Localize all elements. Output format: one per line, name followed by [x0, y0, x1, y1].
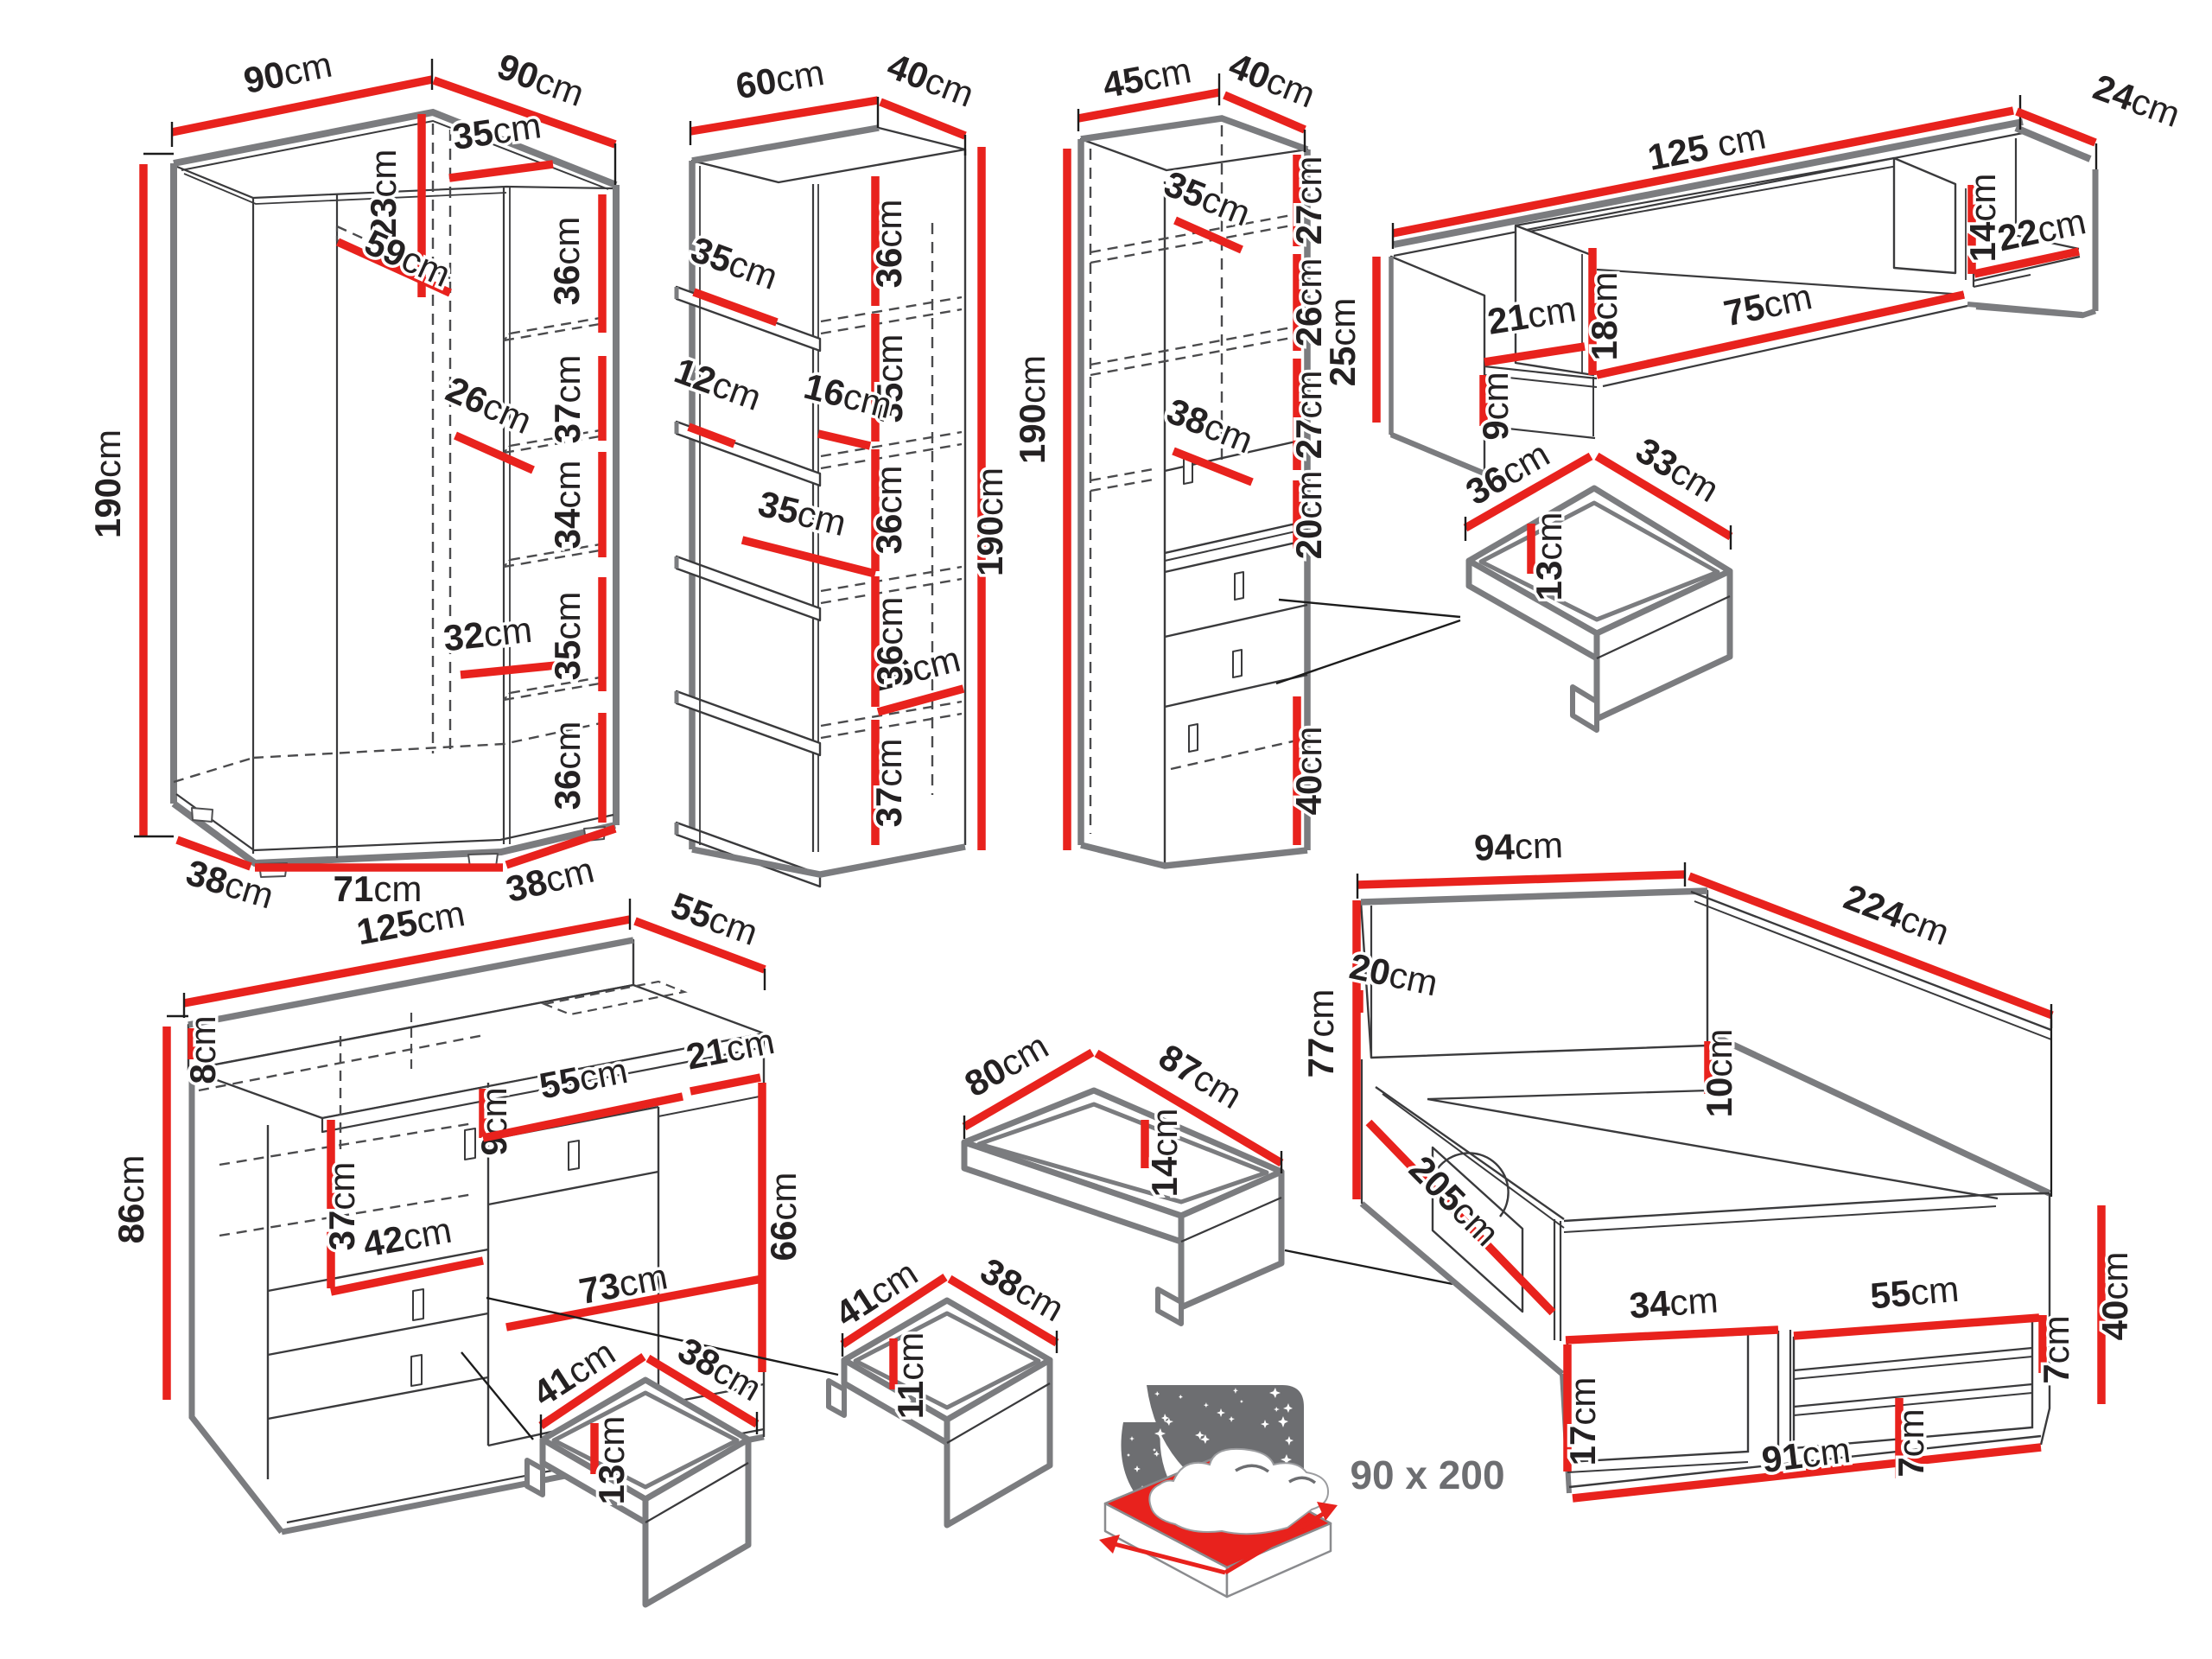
svg-text:7cm: 7cm: [2036, 1315, 2076, 1383]
svg-text:94cm: 94cm: [1473, 824, 1563, 868]
svg-text:9cm: 9cm: [474, 1087, 514, 1155]
svg-text:90 x 200: 90 x 200: [1350, 1452, 1504, 1497]
svg-text:18cm: 18cm: [1584, 272, 1624, 361]
svg-text:36cm: 36cm: [868, 200, 909, 289]
svg-text:14cm: 14cm: [1144, 1109, 1185, 1198]
svg-text:36cm: 36cm: [869, 597, 910, 686]
svg-text:20cm: 20cm: [1288, 471, 1329, 560]
svg-text:34cm: 34cm: [1628, 1280, 1719, 1326]
svg-text:37cm: 37cm: [868, 739, 909, 828]
svg-text:36cm: 36cm: [546, 217, 587, 306]
svg-text:7cm: 7cm: [1891, 1408, 1931, 1477]
svg-text:13cm: 13cm: [1529, 512, 1569, 601]
svg-text:40cm: 40cm: [1288, 727, 1329, 816]
svg-text:11cm: 11cm: [890, 1332, 931, 1419]
svg-text:27cm: 27cm: [1288, 156, 1329, 245]
svg-text:190cm: 190cm: [1012, 355, 1052, 464]
svg-text:36cm: 36cm: [868, 466, 909, 555]
svg-text:10cm: 10cm: [1699, 1029, 1739, 1118]
svg-text:77cm: 77cm: [1300, 989, 1341, 1078]
svg-text:36cm: 36cm: [547, 721, 588, 810]
svg-text:86cm: 86cm: [111, 1155, 151, 1244]
svg-text:66cm: 66cm: [763, 1173, 804, 1262]
svg-text:25cm: 25cm: [1322, 298, 1363, 387]
svg-text:190cm: 190cm: [87, 429, 128, 538]
svg-text:55cm: 55cm: [1869, 1268, 1961, 1317]
svg-text:35cm: 35cm: [547, 592, 588, 681]
svg-text:190cm: 190cm: [969, 467, 1010, 576]
svg-text:9cm: 9cm: [1475, 372, 1516, 440]
svg-text:37cm: 37cm: [547, 355, 588, 444]
svg-text:34cm: 34cm: [547, 461, 588, 550]
svg-text:37cm: 37cm: [321, 1162, 362, 1251]
svg-text:40cm: 40cm: [2094, 1252, 2135, 1341]
svg-text:17cm: 17cm: [1562, 1377, 1603, 1466]
svg-text:8cm: 8cm: [182, 1015, 223, 1084]
svg-text:13cm: 13cm: [591, 1416, 632, 1505]
